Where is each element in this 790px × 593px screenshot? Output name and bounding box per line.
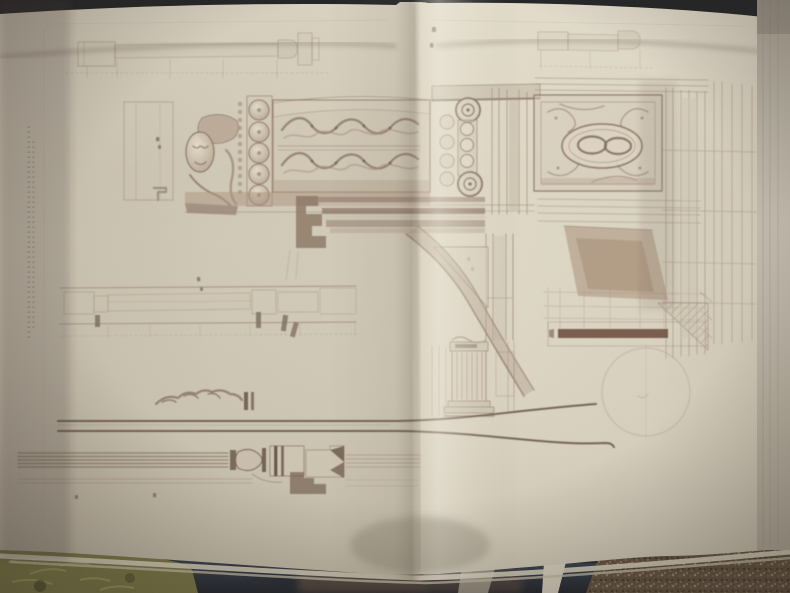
photo-open-book-plate <box>0 0 790 593</box>
scene-svg <box>0 0 790 593</box>
film-grain <box>0 0 790 593</box>
photo-effects <box>0 0 790 593</box>
